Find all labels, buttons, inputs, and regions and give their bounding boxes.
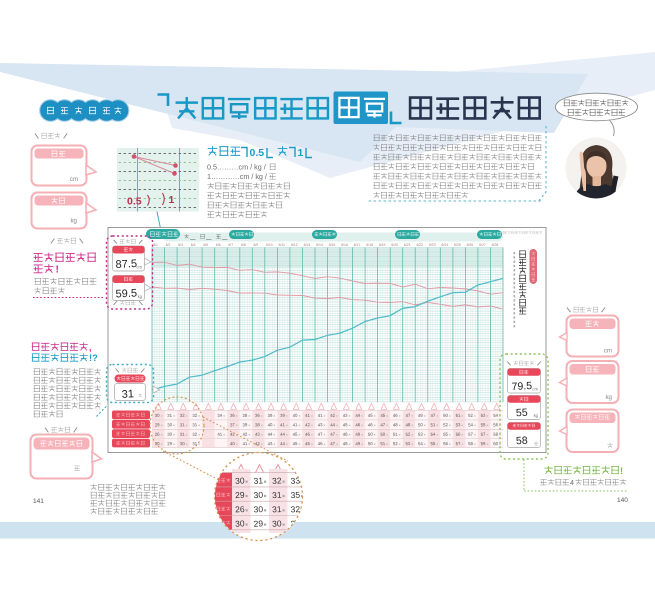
svg-text:6/17: 6/17 — [354, 243, 361, 247]
svg-text:kg: kg — [605, 394, 612, 401]
svg-text:0.5: 0.5 — [127, 196, 142, 208]
svg-text:35: 35 — [290, 490, 300, 500]
svg-text:6/5: 6/5 — [203, 243, 208, 247]
svg-text:4: 4 — [570, 478, 574, 487]
svg-text:6/10: 6/10 — [266, 243, 273, 247]
svg-text:58: 58 — [516, 435, 528, 448]
svg-text:30: 30 — [235, 475, 245, 485]
svg-text:6/1: 6/1 — [153, 243, 158, 247]
svg-text:!?: !? — [89, 353, 98, 363]
svg-text:cm: cm — [604, 348, 612, 355]
svg-text:,: , — [89, 343, 92, 353]
svg-text:!: ! — [620, 466, 623, 476]
svg-text:kg: kg — [138, 294, 143, 299]
svg-text:6/13: 6/13 — [304, 243, 311, 247]
svg-text:6/25: 6/25 — [454, 243, 461, 247]
svg-text:0.5………cm / kg /: 0.5………cm / kg / — [207, 163, 266, 172]
svg-text:141: 141 — [33, 498, 44, 505]
svg-text:kg: kg — [70, 218, 77, 225]
svg-text:31: 31 — [121, 388, 134, 401]
svg-text:6/2: 6/2 — [166, 243, 171, 247]
svg-text:6/28: 6/28 — [492, 243, 499, 247]
svg-text:!: ! — [56, 265, 59, 276]
svg-text:6/8: 6/8 — [241, 243, 246, 247]
svg-text:30: 30 — [253, 504, 263, 514]
svg-text:6/15: 6/15 — [329, 243, 336, 247]
svg-text:6/19: 6/19 — [379, 243, 386, 247]
svg-text:6/6: 6/6 — [216, 243, 221, 247]
svg-text:6/16: 6/16 — [341, 243, 348, 247]
svg-text:cm: cm — [70, 176, 78, 183]
svg-text:kg: kg — [534, 413, 539, 418]
svg-text:1: 1 — [169, 194, 175, 206]
svg-text:30: 30 — [272, 518, 282, 528]
svg-text:6/23: 6/23 — [429, 243, 436, 247]
svg-text:79.5: 79.5 — [511, 380, 532, 393]
svg-text:32: 32 — [272, 475, 282, 485]
svg-text:6/26: 6/26 — [467, 243, 474, 247]
svg-text:0.5: 0.5 — [250, 147, 265, 159]
svg-text:6/3: 6/3 — [178, 243, 183, 247]
svg-text:31: 31 — [253, 475, 263, 485]
svg-text:26: 26 — [235, 504, 245, 514]
svg-text:cm: cm — [136, 265, 142, 270]
svg-text:6/4: 6/4 — [191, 243, 196, 247]
svg-text:30: 30 — [235, 518, 245, 528]
svg-text:55: 55 — [516, 407, 528, 420]
svg-text:cm: cm — [532, 387, 538, 392]
svg-text:87.5: 87.5 — [115, 258, 137, 271]
svg-text:1…………cm / kg /: 1…………cm / kg / — [207, 172, 267, 181]
svg-text:31: 31 — [272, 504, 282, 514]
svg-text:6/12: 6/12 — [291, 243, 298, 247]
svg-text:6/22: 6/22 — [416, 243, 423, 247]
svg-text:1: 1 — [298, 147, 304, 159]
svg-text:6/11: 6/11 — [279, 243, 285, 247]
svg-text:31: 31 — [272, 490, 282, 500]
svg-text:140: 140 — [617, 497, 628, 504]
svg-text:6/14: 6/14 — [316, 243, 323, 247]
svg-text:6/9: 6/9 — [253, 243, 258, 247]
svg-text:59.5: 59.5 — [115, 287, 137, 300]
svg-text:6/7: 6/7 — [228, 243, 233, 247]
svg-text:29: 29 — [253, 518, 263, 528]
svg-text:6/20: 6/20 — [391, 243, 398, 247]
svg-text:6/18: 6/18 — [366, 243, 373, 247]
svg-text:6/27: 6/27 — [479, 243, 486, 247]
svg-text:6/21: 6/21 — [404, 243, 411, 247]
svg-text:6/24: 6/24 — [442, 243, 449, 247]
svg-text:30: 30 — [253, 490, 263, 500]
svg-text:29: 29 — [235, 490, 245, 500]
